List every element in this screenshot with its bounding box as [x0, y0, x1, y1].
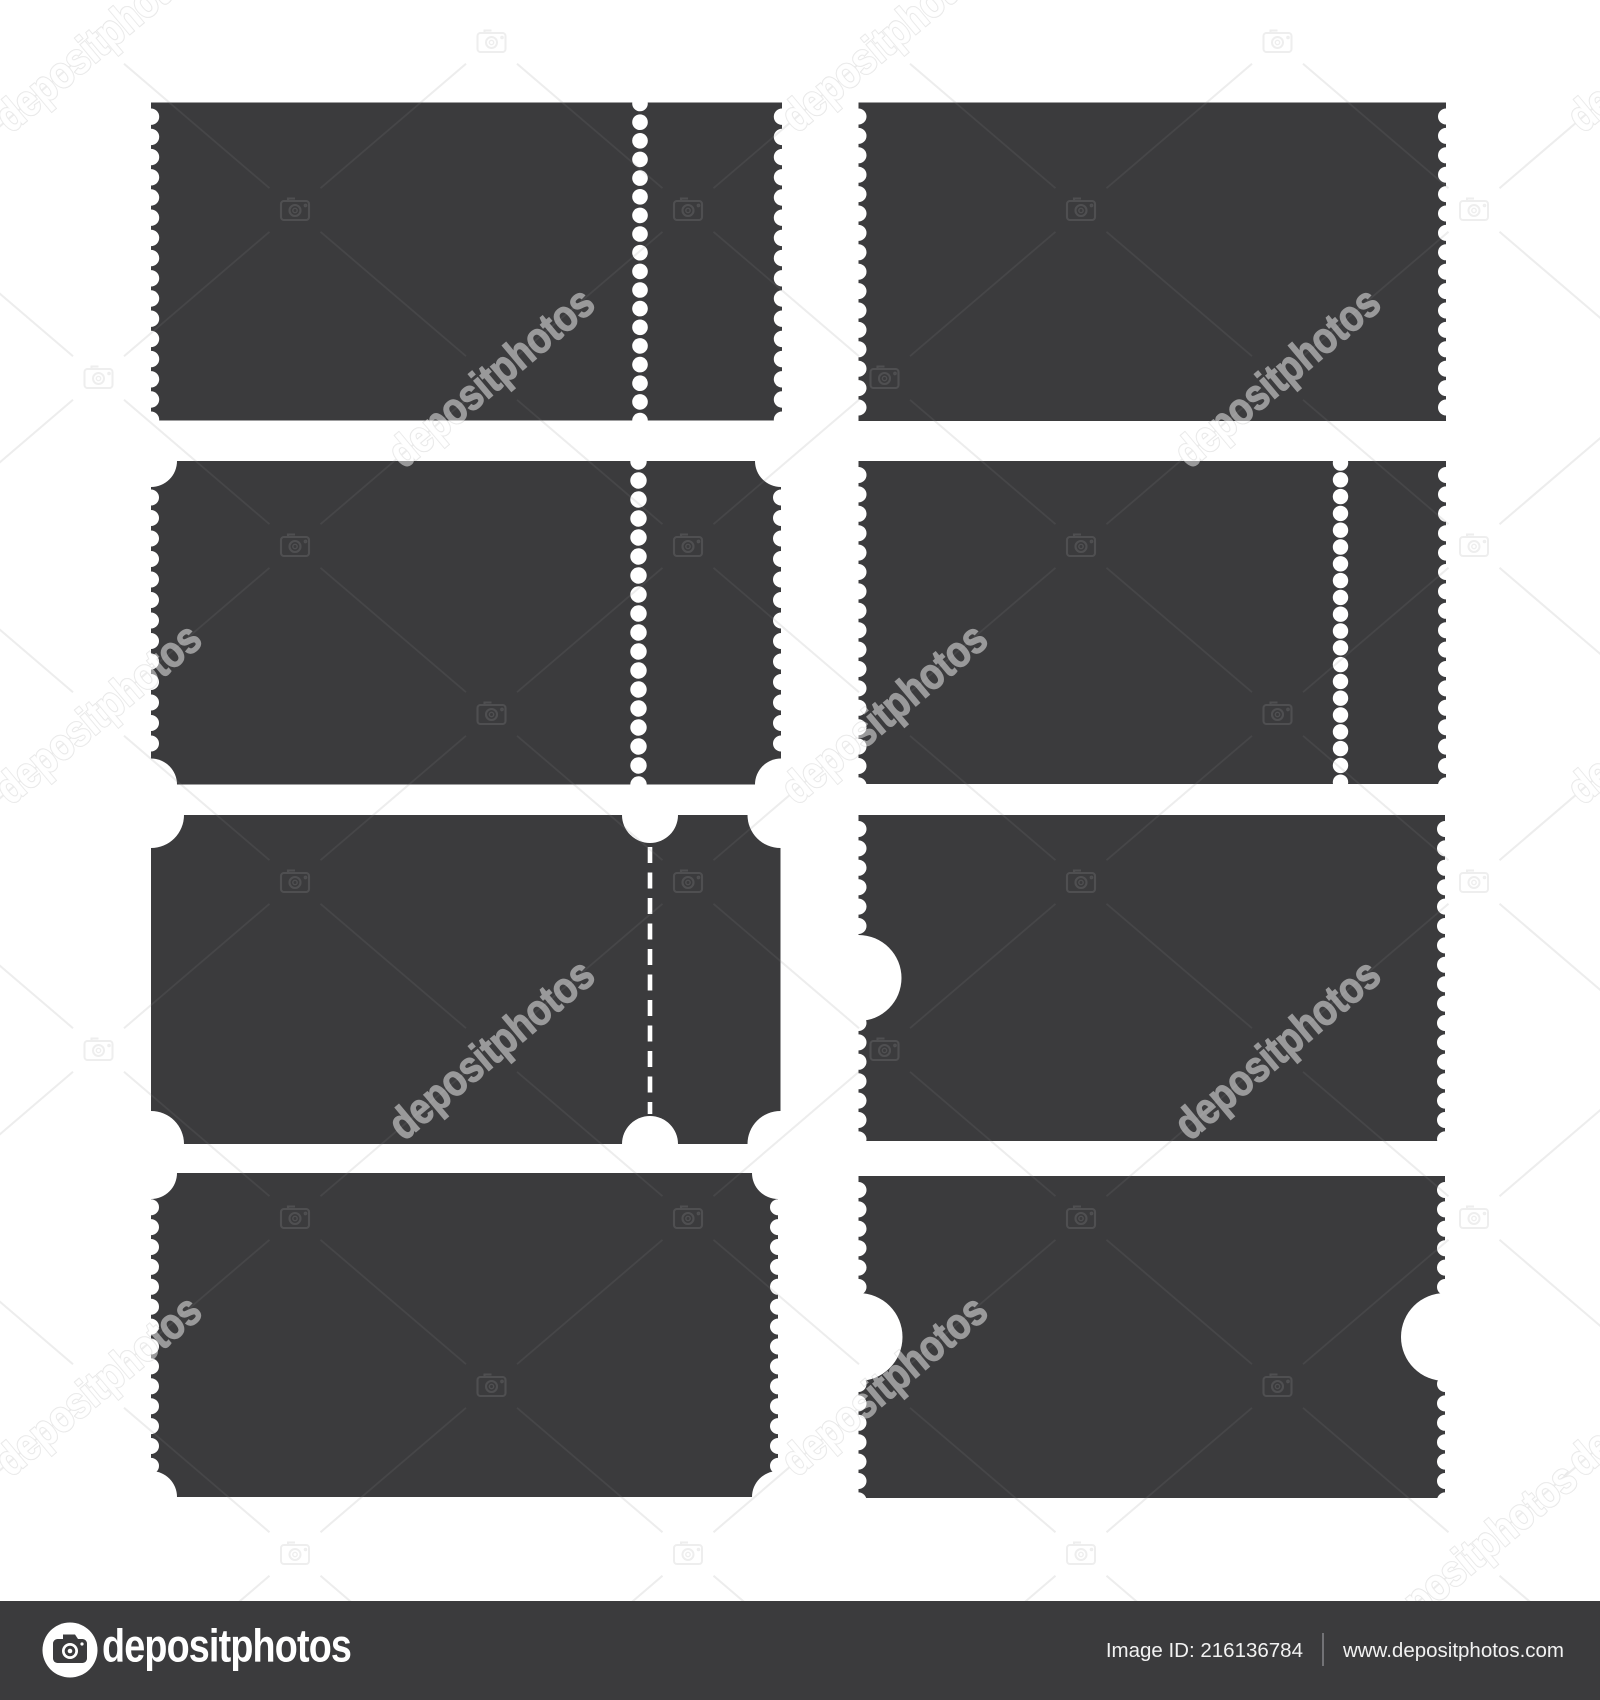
svg-text:Image ID: 216136784: Image ID: 216136784 — [1106, 1639, 1303, 1662]
svg-text:depositphotos: depositphotos — [102, 1620, 351, 1671]
svg-text:www.depositphotos.com: www.depositphotos.com — [1342, 1639, 1564, 1662]
